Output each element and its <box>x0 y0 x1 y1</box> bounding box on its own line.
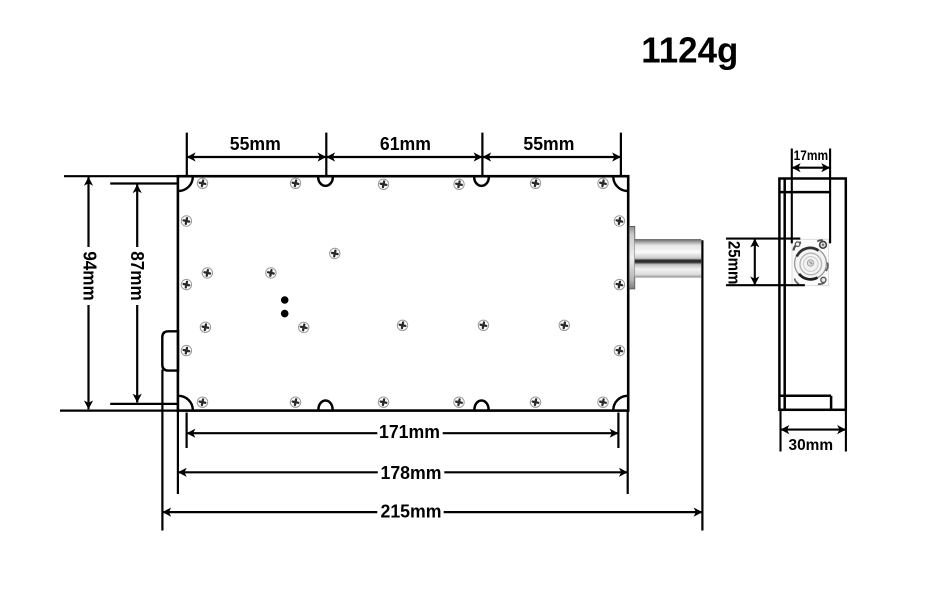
svg-text:178mm: 178mm <box>381 462 442 483</box>
svg-text:55mm: 55mm <box>523 133 574 154</box>
svg-text:61mm: 61mm <box>380 133 431 154</box>
svg-text:55mm: 55mm <box>230 133 281 154</box>
svg-text:94mm: 94mm <box>79 251 100 301</box>
svg-text:30mm: 30mm <box>789 437 834 454</box>
svg-text:171mm: 171mm <box>379 421 440 442</box>
svg-text:17mm: 17mm <box>794 148 829 163</box>
svg-text:215mm: 215mm <box>381 501 442 522</box>
svg-text:87mm: 87mm <box>127 251 148 301</box>
svg-text:25mm: 25mm <box>724 241 743 285</box>
svg-text:1124g: 1124g <box>641 30 738 71</box>
